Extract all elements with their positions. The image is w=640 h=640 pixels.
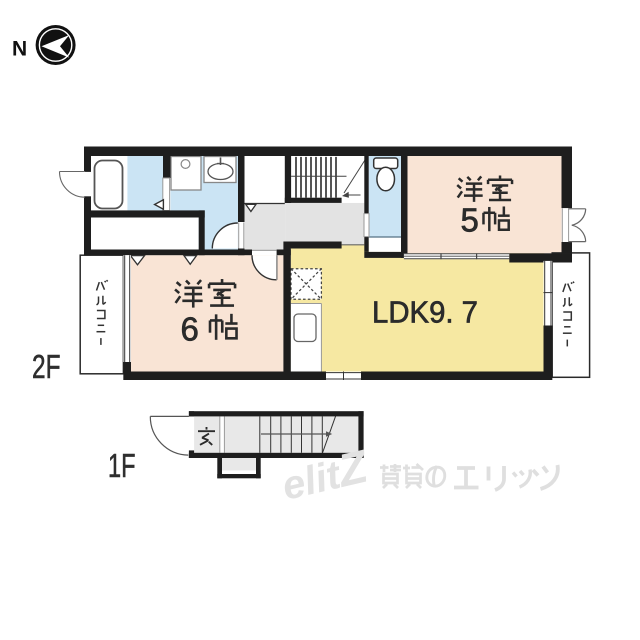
svg-text:1F: 1F bbox=[108, 447, 136, 484]
svg-text:N: N bbox=[12, 38, 27, 61]
svg-text:LDK9. 7: LDK9. 7 bbox=[372, 295, 478, 330]
svg-text:6: 6 bbox=[181, 311, 199, 348]
svg-text:5: 5 bbox=[461, 202, 479, 239]
svg-text:2F: 2F bbox=[32, 348, 61, 385]
